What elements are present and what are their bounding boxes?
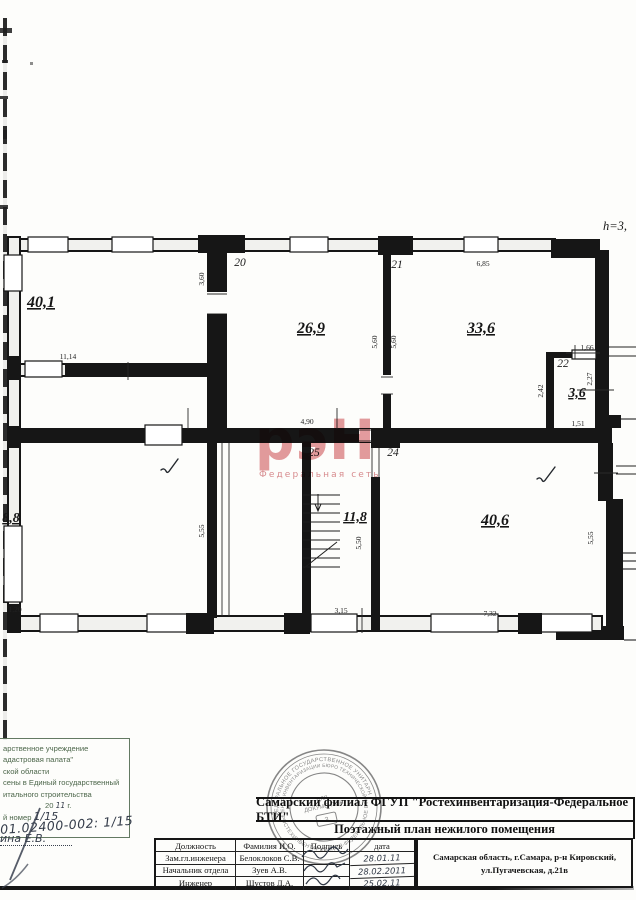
doc-title: Поэтажный план нежилого помещения — [334, 822, 555, 837]
window — [464, 237, 498, 252]
pen-strokes — [0, 800, 60, 895]
address-cell: Самарская область, г.Самара, р-н Кировск… — [416, 838, 633, 888]
dimension-label: 5,55 — [586, 531, 595, 544]
window — [145, 425, 182, 445]
dimension-label: 5,50 — [354, 536, 363, 549]
wall — [8, 426, 20, 448]
col-header-position: Должность — [156, 840, 236, 852]
dimension-label: 5,55 — [197, 524, 206, 537]
cell-position: Зам.гл.инженера — [156, 852, 236, 865]
signatures — [296, 846, 354, 890]
dimension-label: 2,42 — [536, 384, 545, 397]
room-area-label: 33,6 — [466, 320, 495, 337]
wall — [8, 356, 20, 380]
dimension-label: 3,60 — [197, 272, 206, 285]
room-area-label: 40,1 — [26, 294, 55, 311]
cell-name: Зуев А.В. — [236, 865, 304, 878]
room-area-label: 8,8 — [2, 511, 20, 526]
room-area-label: 26,9 — [296, 320, 325, 337]
wall — [65, 363, 215, 377]
wall — [595, 250, 609, 417]
wall — [595, 415, 621, 428]
dimension-label: 2,27 — [585, 372, 594, 385]
address-line1: Самарская область, г.Самара, р-н Кировск… — [433, 852, 616, 862]
dimension-label: 6,85 — [476, 259, 489, 268]
room-number: 22 — [557, 358, 569, 370]
window — [112, 237, 153, 252]
window — [28, 237, 68, 252]
room-number: 20 — [234, 257, 246, 269]
window — [40, 614, 78, 632]
wall — [383, 394, 391, 428]
window — [4, 526, 22, 602]
registry-stamp-line: сены в Единый государственный — [3, 777, 129, 788]
registry-stamp-line: ской области — [3, 766, 129, 777]
ceiling-height-label: h=3, — [603, 219, 627, 233]
dimension-label: 5,60 — [370, 335, 379, 348]
dimension-label: 7,32 — [483, 609, 496, 618]
room-number: 21 — [391, 259, 403, 271]
dimension-label: 5,60 — [389, 335, 398, 348]
wall — [207, 443, 217, 618]
watermark-logo: рэН — [255, 414, 376, 466]
year-suffix: г. — [67, 801, 71, 810]
wall — [546, 352, 554, 428]
room-area-label: 3,6 — [567, 386, 586, 401]
window — [4, 255, 22, 291]
cell-position: Инженер — [156, 877, 236, 889]
cell-date: 25.02.11 — [350, 876, 414, 891]
title-block-org-row: Самарский филиал ФГУП "Ростехинвентариза… — [256, 797, 635, 822]
wall-pillar — [378, 236, 413, 255]
window — [147, 614, 189, 632]
check-mark — [161, 459, 178, 472]
window — [541, 614, 592, 632]
col-header-name: Фамилия И.О. — [236, 840, 304, 852]
title-block-doc-row: Поэтажный план нежилого помещения — [256, 820, 635, 839]
room-area-label: 11,8 — [343, 510, 367, 525]
window — [311, 614, 357, 632]
wall — [207, 250, 227, 292]
registry-stamp-line: адастровая палата" — [3, 754, 129, 765]
dimension-label: 3,15 — [334, 606, 347, 615]
dimension-label: 1,66 — [580, 343, 593, 352]
address-line2: ул.Пугачевская, д.21в — [481, 865, 568, 875]
wall — [371, 477, 380, 630]
wall — [383, 255, 391, 375]
scanned-floor-plan-page: 40,1 26,9 33,6 3,6 8,8 11,8 40,6 20 21 2… — [0, 0, 636, 900]
wall — [606, 499, 623, 629]
personnel-table: Должность Фамилия И.О. Подпись дата Зам.… — [154, 838, 416, 888]
wall — [598, 443, 613, 501]
wall-pillar — [518, 613, 542, 634]
cell-name: Шустов Д.А. — [236, 877, 304, 889]
cell-position: Начальник отдела — [156, 865, 236, 878]
watermark-tagline: Федеральная сеть — [259, 470, 381, 480]
registry-stamp-line: арственное учреждение — [3, 743, 129, 754]
cell-name: Белоклоков С.В. — [236, 852, 304, 865]
room-number: 24 — [387, 447, 399, 459]
room-area-label: 40,6 — [480, 512, 509, 529]
window — [25, 361, 62, 377]
dimension-label: 1,20 — [8, 605, 21, 614]
wall-pillar — [551, 239, 600, 258]
registry-stamp-line: итального строительства — [3, 789, 129, 800]
check-mark — [537, 467, 555, 481]
window — [290, 237, 328, 252]
dimension-label: 1,51 — [571, 419, 584, 428]
dimension-label: 11,14 — [60, 352, 77, 361]
